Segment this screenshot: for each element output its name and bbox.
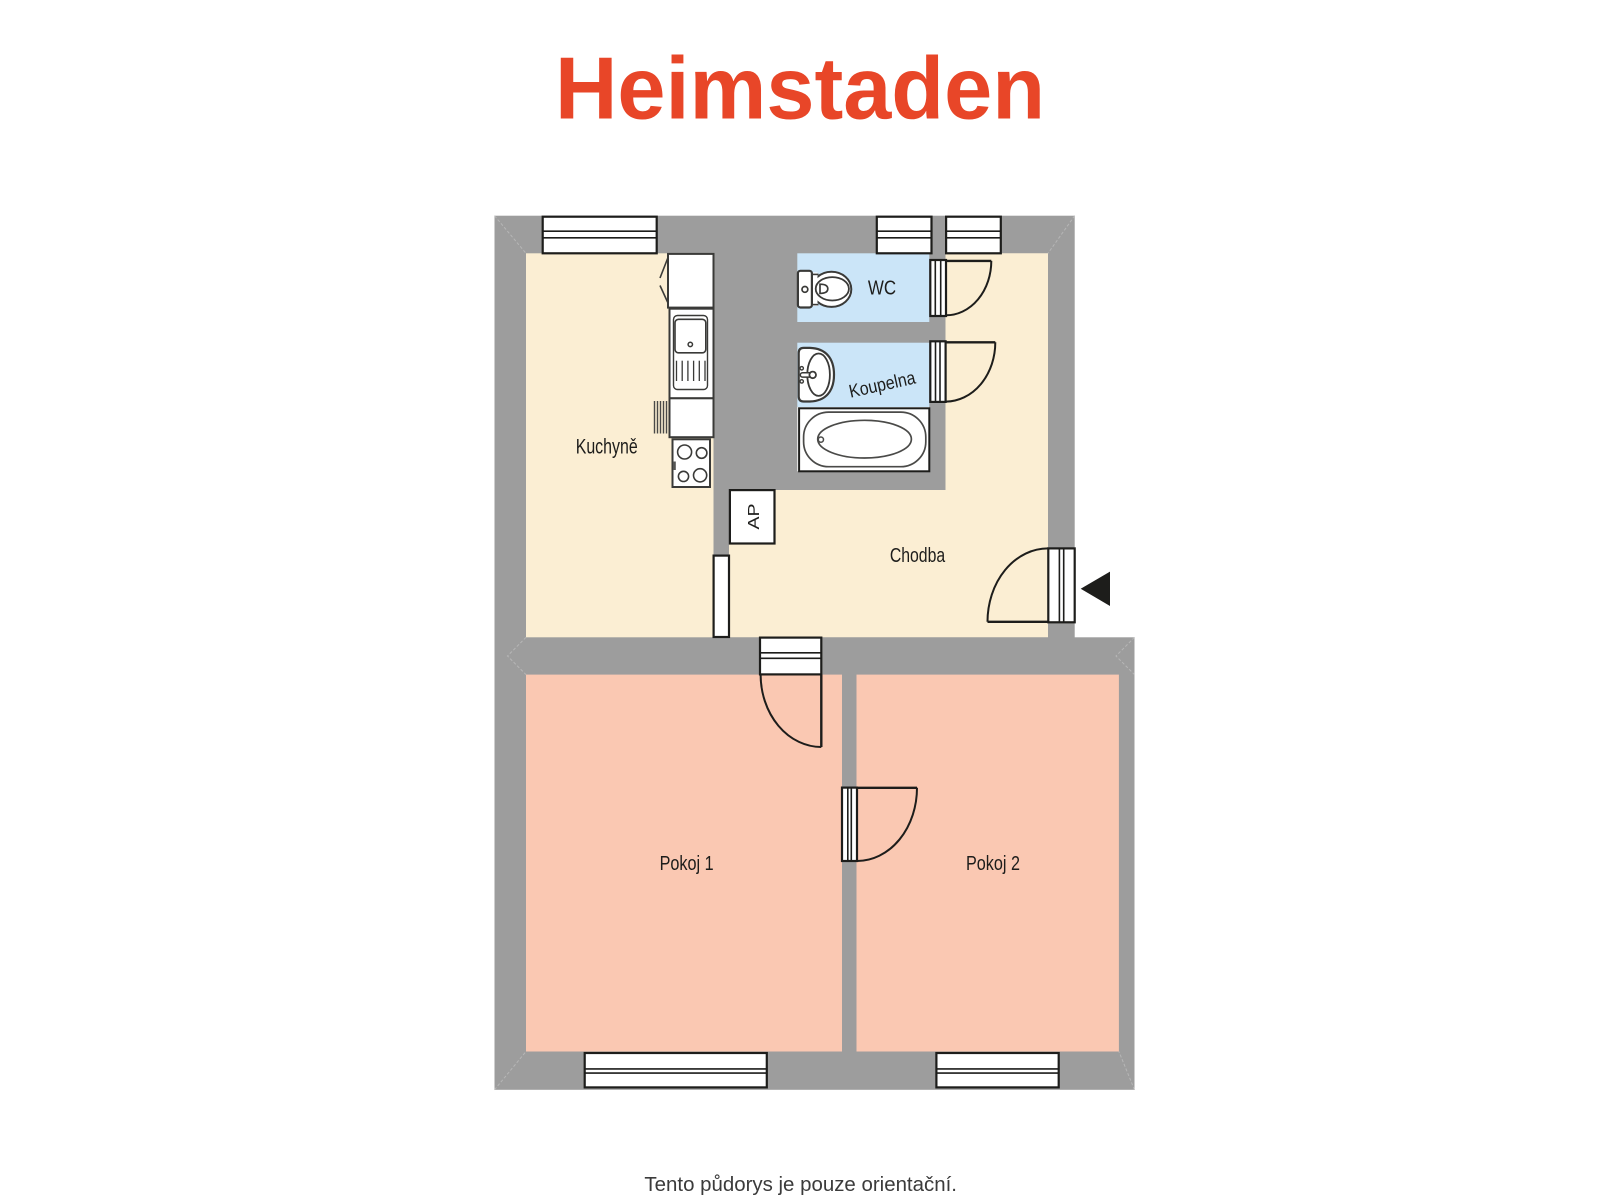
svg-text:Chodba: Chodba bbox=[890, 545, 946, 567]
svg-text:WC: WC bbox=[868, 278, 896, 300]
svg-text:Kuchyně: Kuchyně bbox=[576, 436, 638, 459]
svg-text:AP: AP bbox=[746, 504, 763, 530]
svg-text:Pokoj 1: Pokoj 1 bbox=[660, 852, 714, 875]
svg-text:Pokoj 2: Pokoj 2 bbox=[966, 852, 1020, 875]
svg-text:Tento půdorys je pouze orienta: Tento půdorys je pouze orientační. bbox=[644, 1174, 957, 1196]
svg-text:Heimstaden: Heimstaden bbox=[555, 40, 1045, 138]
